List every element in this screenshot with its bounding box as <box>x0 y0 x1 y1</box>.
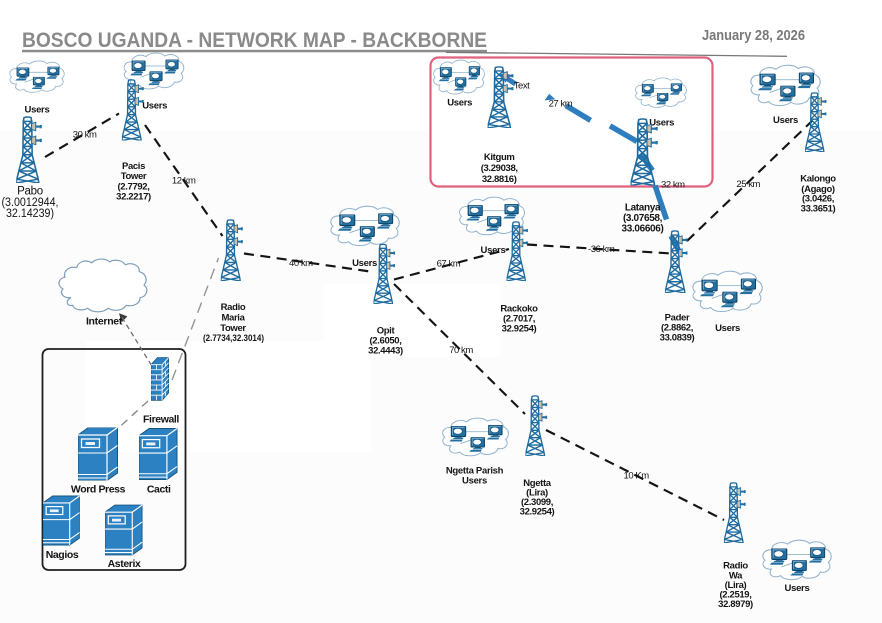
svg-text:32 km: 32 km <box>661 180 685 191</box>
svg-text:Users: Users <box>649 118 674 129</box>
svg-text:27 km: 27 km <box>549 99 573 110</box>
svg-text:32.8816): 32.8816) <box>482 174 517 185</box>
svg-text:Users: Users <box>785 583 810 594</box>
svg-text:Pabo: Pabo <box>17 186 43 198</box>
svg-text:Users: Users <box>142 101 167 112</box>
svg-text:33.0839): 33.0839) <box>660 332 695 343</box>
svg-text:32.9254): 32.9254) <box>520 506 555 517</box>
svg-text:12 km: 12 km <box>172 175 196 186</box>
svg-text:Firewall: Firewall <box>143 414 179 426</box>
svg-text:Latanya: Latanya <box>625 203 661 214</box>
svg-text:Kitgum: Kitgum <box>484 152 515 163</box>
svg-text:Users: Users <box>715 323 740 334</box>
svg-text:Cacti: Cacti <box>147 483 171 495</box>
svg-text:33.06606): 33.06606) <box>622 224 664 235</box>
svg-text:32.4443): 32.4443) <box>368 345 403 356</box>
svg-text:Internet: Internet <box>86 316 123 328</box>
svg-text:Tower: Tower <box>121 171 147 182</box>
svg-text:Text: Text <box>514 81 530 92</box>
svg-text:-36 km: -36 km <box>588 244 615 255</box>
svg-text:January 28, 2026: January 28, 2026 <box>702 27 805 44</box>
svg-text:Users: Users <box>352 258 377 269</box>
svg-text:30 km: 30 km <box>73 130 97 141</box>
svg-text:32.8979): 32.8979) <box>718 599 753 610</box>
svg-text:32.2217): 32.2217) <box>116 192 151 203</box>
svg-text:(3.29038,: (3.29038, <box>481 163 518 174</box>
svg-text:Radio: Radio <box>221 302 246 313</box>
svg-text:70 km: 70 km <box>449 345 473 356</box>
svg-text:Users: Users <box>773 115 798 126</box>
svg-text:32.14239): 32.14239) <box>6 208 54 220</box>
svg-text:67 km: 67 km <box>437 259 461 270</box>
svg-text:BOSCO UGANDA - NETWORK MAP -: BOSCO UGANDA - NETWORK MAP - BACKBORNE <box>22 28 487 52</box>
svg-text:(3.07658,: (3.07658, <box>623 213 663 224</box>
svg-text:10 Km: 10 Km <box>624 470 650 481</box>
svg-text:Users: Users <box>462 476 487 487</box>
svg-text:Nagios: Nagios <box>46 549 79 561</box>
svg-text:Users: Users <box>481 245 506 256</box>
svg-text:33.3651): 33.3651) <box>801 203 836 214</box>
svg-text:Users: Users <box>447 97 472 108</box>
svg-text:Maria: Maria <box>221 313 245 324</box>
svg-text:Users: Users <box>25 104 50 115</box>
svg-text:40 km: 40 km <box>289 258 313 269</box>
svg-text:32.9254): 32.9254) <box>502 324 537 335</box>
svg-text:Word Press: Word Press <box>71 483 126 495</box>
svg-text:(2.7734,32.3014): (2.7734,32.3014) <box>203 333 264 343</box>
svg-text:Asterix: Asterix <box>108 558 141 570</box>
svg-text:25 km: 25 km <box>736 179 760 190</box>
